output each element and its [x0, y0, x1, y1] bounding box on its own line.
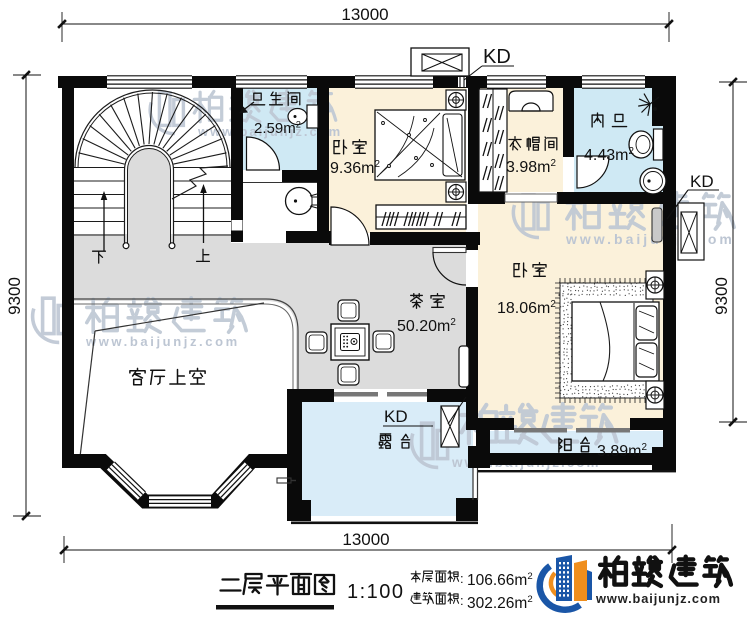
svg-text:www.baijunjz.com: www.baijunjz.com [565, 231, 735, 247]
svg-text:www.baijunjz.com: www.baijunjz.com [85, 334, 240, 349]
svg-text:1:100: 1:100 [347, 581, 405, 603]
svg-text:3.98m2: 3.98m2 [506, 158, 556, 176]
svg-text:106.66m2: 106.66m2 [467, 571, 533, 589]
svg-text:302.26m2: 302.26m2 [467, 594, 533, 612]
svg-text:www.baijunjz.com: www.baijunjz.com [595, 591, 721, 606]
svg-text:2.59m2: 2.59m2 [254, 119, 301, 137]
svg-text:KD: KD [690, 172, 714, 191]
svg-text:9300: 9300 [712, 277, 731, 315]
svg-text:KD: KD [384, 407, 408, 426]
svg-text:13000: 13000 [341, 5, 388, 24]
svg-text:50.20m2: 50.20m2 [397, 317, 456, 335]
svg-text:9.36m2: 9.36m2 [330, 159, 380, 177]
svg-text:KD: KD [483, 46, 511, 68]
svg-text:4.43m2: 4.43m2 [584, 146, 634, 164]
svg-text:3.89m2: 3.89m2 [597, 442, 647, 460]
svg-text:13000: 13000 [342, 530, 389, 549]
svg-text:18.06m2: 18.06m2 [497, 299, 556, 317]
svg-text::: : [460, 593, 464, 608]
svg-text::: : [460, 571, 464, 586]
svg-text:9300: 9300 [5, 277, 24, 315]
